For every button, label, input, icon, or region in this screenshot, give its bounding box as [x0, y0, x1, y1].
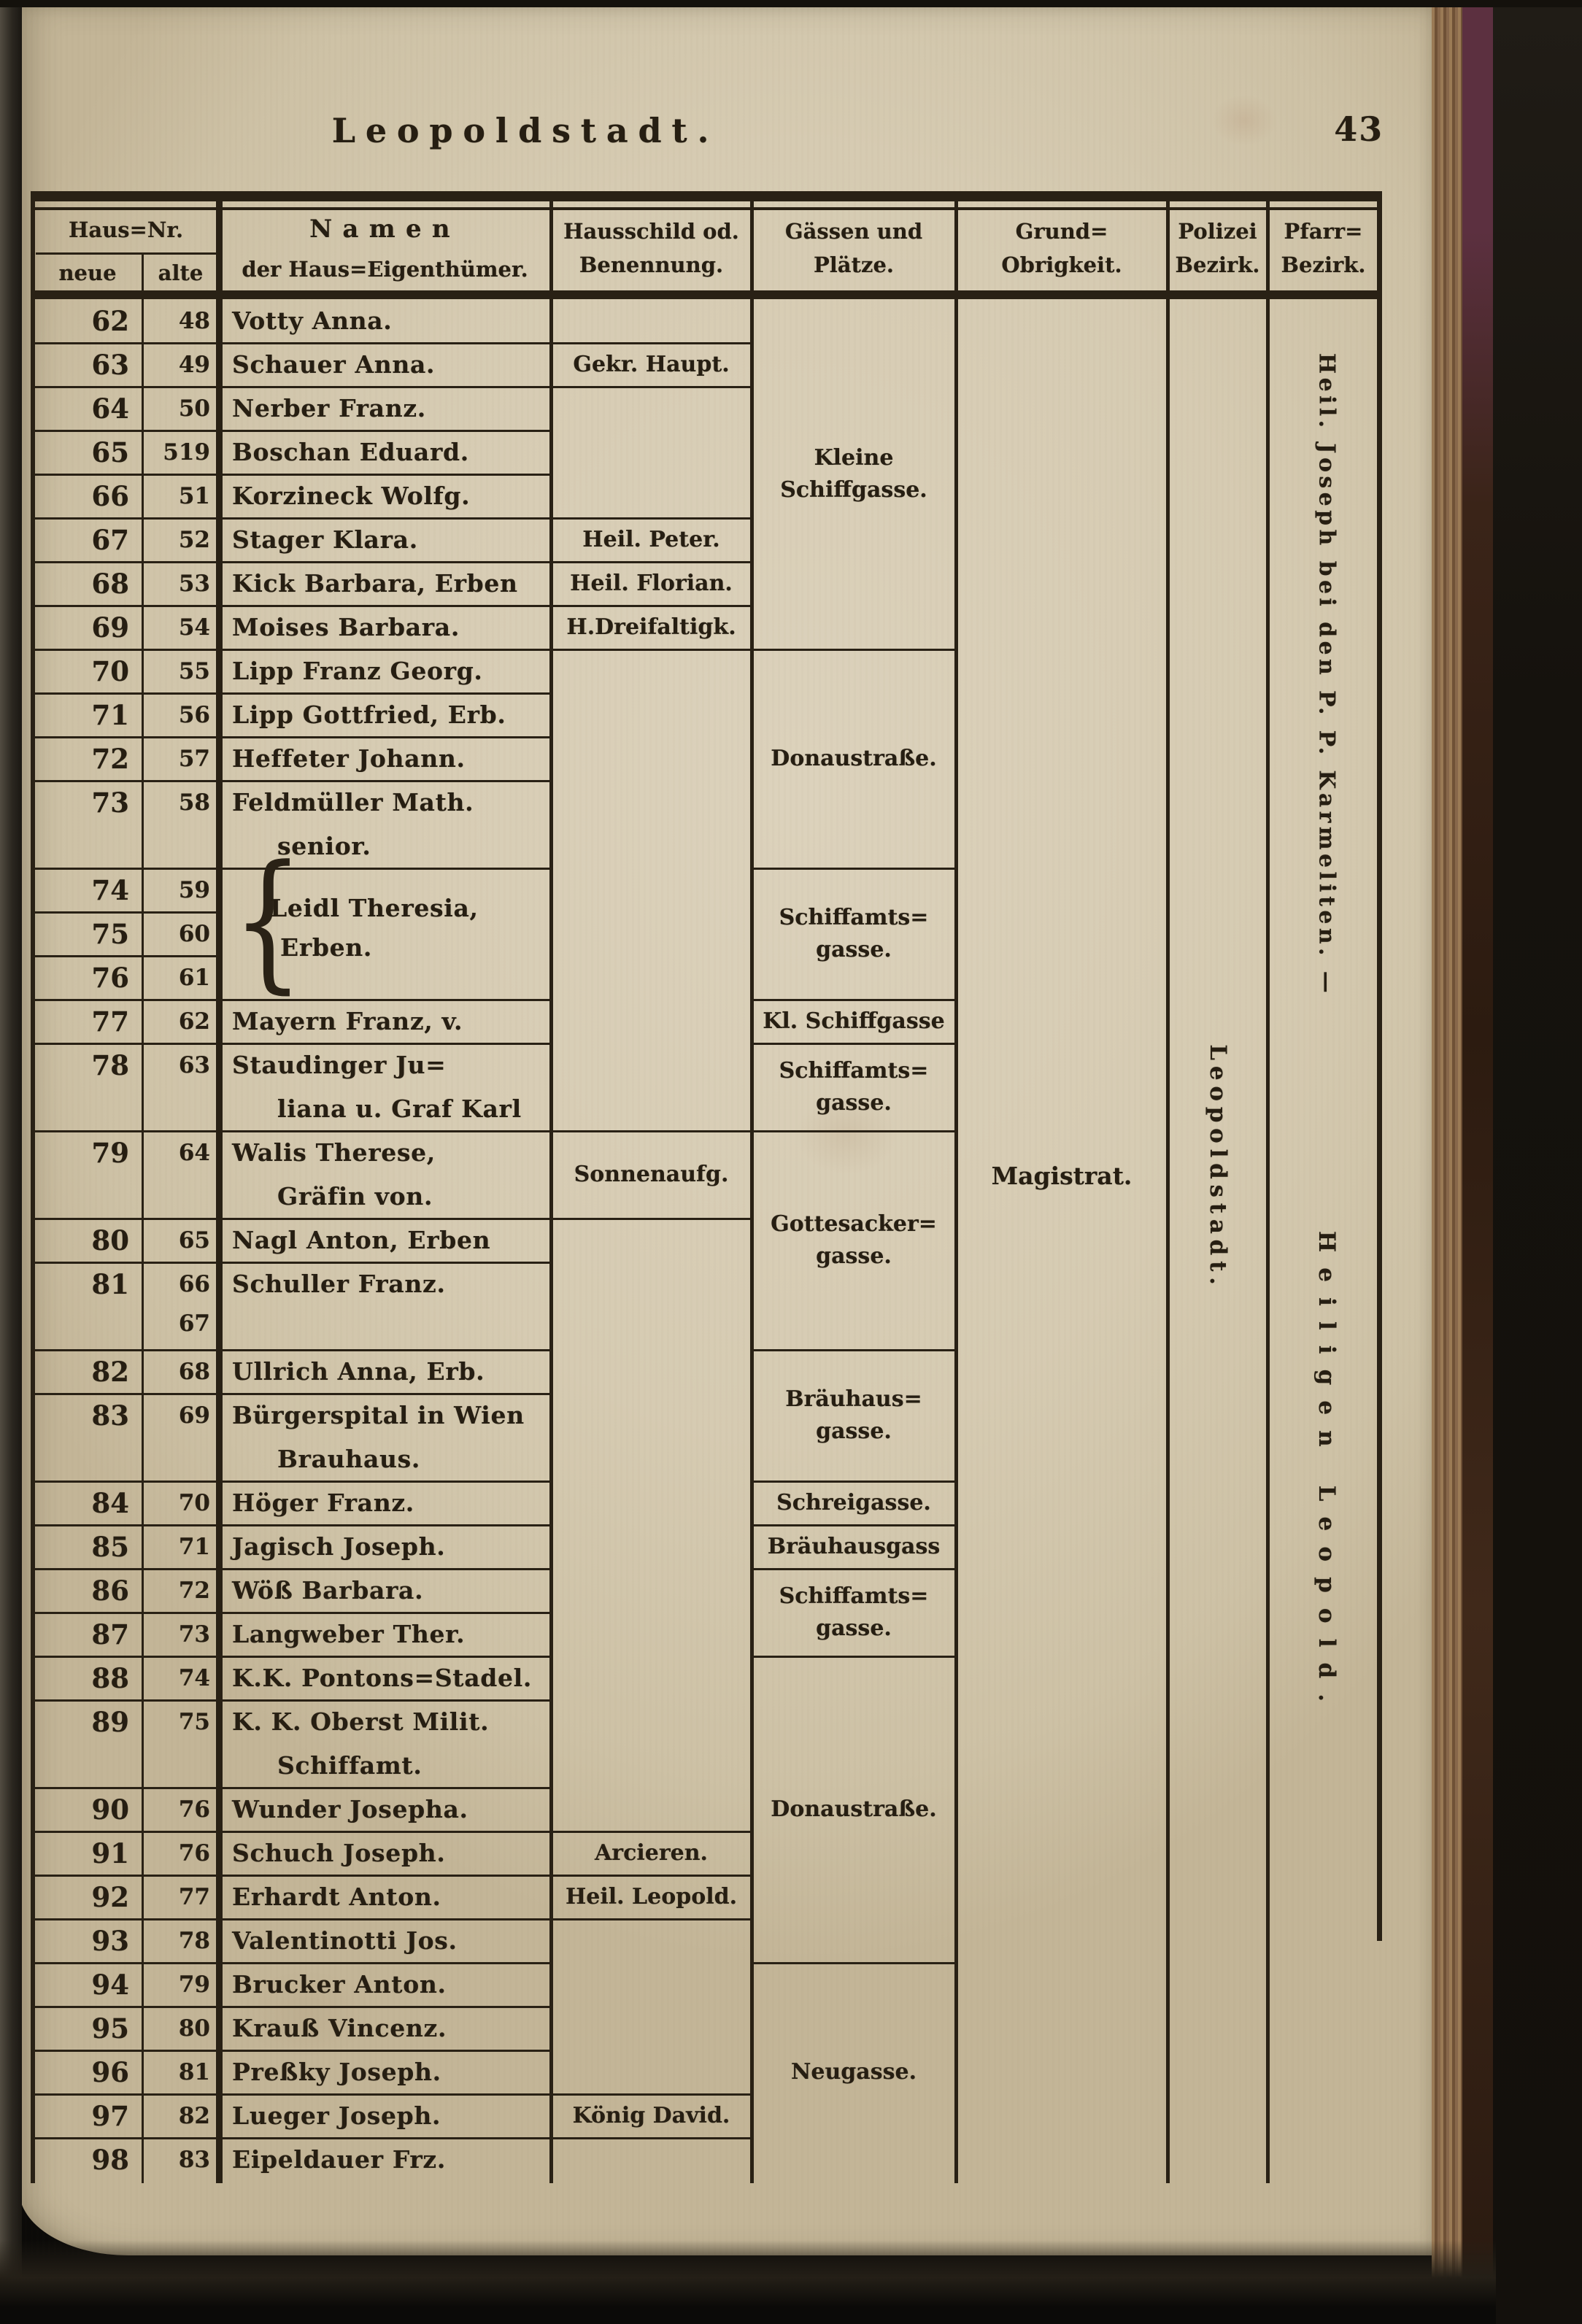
owner-name: Erhardt Anton.: [232, 1875, 441, 1919]
owner-name: Lipp Franz Georg.: [232, 649, 483, 693]
house-number-new: 68: [33, 562, 129, 606]
house-number-new: 85: [33, 1525, 129, 1569]
header-gaessen: Gässen und: [752, 219, 956, 244]
owner-name-braced: Erben.: [280, 928, 372, 968]
owner-name: Langweber Ther.: [232, 1613, 465, 1656]
house-number-old: 70: [142, 1481, 210, 1525]
row-divider: [35, 955, 216, 957]
owner-name: Kick Barbara, Erben: [232, 562, 518, 606]
owner-name: Jagisch Joseph.: [232, 1525, 445, 1569]
house-number-old: 52: [142, 518, 210, 562]
header-hausschild: Hausschild od.: [551, 219, 752, 244]
street-name: Donaustraße.: [752, 743, 956, 775]
house-number-old: 82: [142, 2094, 210, 2138]
page-stack-edge: [1432, 0, 1465, 2284]
owner-name: Lipp Gottfried, Erb.: [232, 693, 506, 737]
street-name: Schiffgasse.: [752, 474, 956, 506]
police-district-label: Leopoldstadt.: [1205, 1044, 1231, 1290]
header-haus-nr: Haus=Nr.: [33, 217, 219, 242]
house-number-new: 63: [33, 343, 129, 387]
row-divider: [35, 1481, 549, 1483]
house-number-old: 72: [142, 1569, 210, 1613]
house-number-old: 76: [142, 1788, 210, 1831]
owner-name: Brauhaus.: [277, 1437, 420, 1481]
row-divider: [35, 517, 549, 520]
street-name: Schiffamts=: [752, 1055, 956, 1087]
row-divider: [35, 1656, 549, 1658]
row-divider: [35, 1699, 549, 1702]
parish-district-label: Heiligen Leopold.: [1313, 1231, 1340, 1717]
owner-name: Schiffamt.: [277, 1744, 422, 1788]
page-title: Leopoldstadt.: [277, 111, 773, 150]
shield-box-rule: [553, 386, 750, 388]
house-number-new: 84: [33, 1481, 129, 1525]
row-divider: [35, 1130, 549, 1132]
street-divider: [754, 1043, 954, 1045]
owner-name: Krauß Vincenz.: [232, 2007, 447, 2050]
house-number-old: 63: [142, 1043, 210, 1087]
row-divider: [35, 692, 549, 695]
house-number-old: 65: [142, 1219, 210, 1262]
house-shield: Heil. Peter.: [551, 518, 752, 562]
house-shield: Heil. Florian.: [551, 562, 752, 606]
owner-name: Heffeter Johann.: [232, 737, 466, 781]
row-divider: [35, 2137, 549, 2139]
house-shield: König David.: [551, 2094, 752, 2138]
row-divider: [35, 2050, 549, 2052]
owner-name: Brucker Anton.: [232, 1963, 447, 2007]
house-number-new: 78: [33, 1043, 129, 1087]
shield-box-rule: [553, 649, 750, 651]
house-number-old: 69: [142, 1394, 210, 1437]
owner-name: Preßky Joseph.: [232, 2050, 441, 2094]
house-number-old: 64: [142, 1131, 210, 1175]
house-number-old: 68: [142, 1350, 210, 1394]
owner-name: Höger Franz.: [232, 1481, 414, 1525]
house-number-old: 519: [142, 431, 210, 474]
header-polizei: Polizei: [1168, 219, 1267, 244]
header-haus-nr-underline: [36, 252, 216, 255]
shield-box-rule: [553, 1875, 750, 1877]
house-number-new: 82: [33, 1350, 129, 1394]
header-pfarr-sub: Bezirk.: [1267, 252, 1379, 277]
shield-box-rule: [553, 1831, 750, 1833]
street-name: Neugasse.: [752, 2056, 956, 2088]
house-number-old: 77: [142, 1875, 210, 1919]
shield-box-rule: [553, 561, 750, 563]
house-number-old: 59: [142, 868, 210, 912]
owner-name: Gräfin von.: [277, 1175, 433, 1219]
house-number-old: 50: [142, 387, 210, 431]
bottom-edge: [0, 2240, 1496, 2324]
parish-district-label: Heil. Joseph bei den P. P. Karmeliten. —: [1313, 353, 1339, 997]
header-bottom-rule: [31, 290, 1382, 299]
house-number-new: 91: [33, 1831, 129, 1875]
house-number-new: 65: [33, 431, 129, 474]
owner-name: Stager Klara.: [232, 518, 418, 562]
street-name: Schiffamts=: [752, 1580, 956, 1613]
street-divider: [754, 1481, 954, 1483]
header-pfarr: Pfarr=: [1267, 219, 1379, 244]
house-number-old: 75: [142, 1700, 210, 1744]
house-number-old: 83: [142, 2138, 210, 2182]
house-number-old: 60: [142, 912, 210, 956]
row-divider: [35, 1043, 549, 1045]
shield-box-rule: [553, 342, 750, 344]
scanned-book-page: Leopoldstadt. 43 Haus=Nr.neuealteNamende…: [0, 0, 1582, 2324]
house-number-old: 81: [142, 2050, 210, 2094]
house-number-old: 49: [142, 343, 210, 387]
shield-box-rule: [553, 2093, 750, 2096]
house-number-new: 96: [33, 2050, 129, 2094]
page-number: 43: [1322, 109, 1384, 149]
row-divider: [35, 1962, 549, 1964]
house-number-new: 87: [33, 1613, 129, 1656]
row-divider: [35, 649, 549, 651]
column-rule: [216, 191, 223, 2183]
house-number-new: 79: [33, 1131, 129, 1175]
street-name: Schreigasse.: [752, 1487, 956, 1519]
house-number-new: 77: [33, 1000, 129, 1043]
owner-name: Lueger Joseph.: [232, 2094, 441, 2138]
page-edge-shadow: [1462, 0, 1493, 2298]
house-number-old: 80: [142, 2007, 210, 2050]
street-name: Kleine: [752, 442, 956, 474]
shield-box-rule: [553, 605, 750, 607]
house-shield: Sonnenaufg.: [551, 1131, 752, 1219]
row-divider: [35, 561, 549, 563]
house-number-new: 67: [33, 518, 129, 562]
shield-box-rule: [553, 517, 750, 520]
owner-name: Wöß Barbara.: [232, 1569, 423, 1613]
house-shield: Gekr. Haupt.: [551, 343, 752, 387]
row-divider: [35, 736, 549, 738]
house-number-new: 75: [33, 912, 129, 956]
owner-name: Feldmüller Math.: [232, 781, 474, 825]
street-name: Kl. Schiffgasse: [752, 1005, 956, 1038]
street-name: Schiffamts=: [752, 902, 956, 934]
header-neue: neue: [33, 260, 142, 285]
house-number-new: 92: [33, 1875, 129, 1919]
owner-name: Schuch Joseph.: [232, 1831, 445, 1875]
house-number-old: 79: [142, 1963, 210, 2007]
owner-name: Schauer Anna.: [232, 343, 435, 387]
shield-box-rule: [553, 1130, 750, 1132]
house-number-old: 78: [142, 1919, 210, 1963]
owner-name: Wunder Josepha.: [232, 1788, 468, 1831]
owner-name: Votty Anna.: [232, 299, 392, 343]
shield-box-rule: [553, 1918, 750, 1920]
owner-name: Valentinotti Jos.: [232, 1919, 458, 1963]
shield-box-rule: [553, 2137, 750, 2139]
house-shield: H.Dreifaltigk.: [551, 606, 752, 649]
house-number-old: 51: [142, 474, 210, 518]
house-number-new: 71: [33, 693, 129, 737]
book-cover-cloth: [1490, 0, 1582, 2324]
house-number-old: 73: [142, 1613, 210, 1656]
row-divider: [35, 1568, 549, 1570]
authority-label: Magistrat.: [956, 1162, 1168, 1190]
street-name: Bräuhaus=: [752, 1383, 956, 1416]
owner-name: Schuller Franz.: [232, 1262, 446, 1306]
row-divider: [35, 386, 549, 388]
owner-name: liana u. Graf Karl: [277, 1087, 522, 1131]
house-number-new: 70: [33, 649, 129, 693]
owner-name: K. K. Oberst Milit.: [232, 1700, 489, 1744]
house-number-new: 74: [33, 868, 129, 912]
street-name: gasse.: [752, 934, 956, 966]
house-number-new: 81: [33, 1262, 129, 1306]
street-name: gasse.: [752, 1416, 956, 1448]
column-rule: [1266, 191, 1270, 2183]
owner-name: Walis Therese,: [232, 1131, 436, 1175]
house-number-new: 86: [33, 1569, 129, 1613]
paper-stain: [1211, 95, 1277, 146]
row-divider: [35, 780, 549, 782]
street-name: gasse.: [752, 1613, 956, 1645]
house-shield: Arcieren.: [551, 1831, 752, 1875]
street-divider: [754, 1962, 954, 1964]
owner-name: Nagl Anton, Erben: [232, 1219, 490, 1262]
header-grund: Grund=: [956, 219, 1168, 244]
shield-box-rule: [553, 1218, 750, 1220]
row-divider: [35, 1831, 549, 1833]
street-divider: [754, 1568, 954, 1570]
owner-name: Staudinger Ju=: [232, 1043, 447, 1087]
street-name: gasse.: [752, 1240, 956, 1273]
row-divider: [35, 474, 549, 476]
row-divider: [35, 1524, 549, 1526]
house-number-old: 58: [142, 781, 210, 825]
house-number-new: 62: [33, 299, 129, 343]
house-number-new: 76: [33, 956, 129, 1000]
table-top-thin-rule: [31, 207, 1382, 210]
house-number-old: 54: [142, 606, 210, 649]
house-number-old: 61: [142, 956, 210, 1000]
house-number-old: 67: [142, 1302, 210, 1346]
owner-name: Ullrich Anna, Erb.: [232, 1350, 485, 1394]
row-divider: [35, 1875, 549, 1877]
header-grund-sub: Obrigkeit.: [956, 252, 1168, 277]
house-shield: Heil. Leopold.: [551, 1875, 752, 1919]
house-number-new: 93: [33, 1919, 129, 1963]
header-hausschild-sub: Benennung.: [551, 252, 752, 277]
row-divider: [35, 2006, 549, 2008]
house-number-old: 57: [142, 737, 210, 781]
house-number-new: 98: [33, 2138, 129, 2182]
owner-name-braced: Leidl Theresia,: [270, 889, 479, 928]
street-name: gasse.: [752, 1087, 956, 1119]
house-number-new: 73: [33, 781, 129, 825]
owner-name: K.K. Pontons=Stadel.: [232, 1656, 532, 1700]
street-divider: [754, 999, 954, 1001]
street-name: Donaustraße.: [752, 1794, 956, 1826]
house-number-old: 55: [142, 649, 210, 693]
header-alte: alte: [142, 260, 219, 285]
house-number-new: 97: [33, 2094, 129, 2138]
street-divider: [754, 1656, 954, 1658]
table-top-heavy-rule: [31, 191, 1382, 201]
owner-name: Boschan Eduard.: [232, 431, 469, 474]
street-divider: [754, 1524, 954, 1526]
house-number-old: 74: [142, 1656, 210, 1700]
house-number-old: 56: [142, 693, 210, 737]
house-number-old: 62: [142, 1000, 210, 1043]
house-number-new: 95: [33, 2007, 129, 2050]
house-number-new: 90: [33, 1788, 129, 1831]
house-number-old: 53: [142, 562, 210, 606]
house-number-old: 76: [142, 1831, 210, 1875]
column-rule: [1377, 191, 1382, 1941]
house-number-old: 71: [142, 1525, 210, 1569]
street-divider: [754, 868, 954, 870]
row-divider: [35, 911, 216, 914]
street-name: Gottesacker=: [752, 1208, 956, 1240]
row-divider: [35, 1262, 549, 1264]
street-divider: [754, 649, 954, 651]
street-divider: [754, 1349, 954, 1351]
house-number-new: 88: [33, 1656, 129, 1700]
owner-name: Nerber Franz.: [232, 387, 426, 431]
street-name: Bräuhausgass: [752, 1531, 956, 1563]
row-divider: [35, 1393, 549, 1395]
row-divider: [35, 1218, 549, 1220]
house-number-new: 64: [33, 387, 129, 431]
owner-name: Moises Barbara.: [232, 606, 460, 649]
owner-name: Korzineck Wolfg.: [232, 474, 470, 518]
house-number-new: 83: [33, 1394, 129, 1437]
row-divider: [35, 1918, 549, 1920]
house-number-new: 89: [33, 1700, 129, 1744]
header-gaessen-sub: Plätze.: [752, 252, 956, 277]
row-divider: [35, 1612, 549, 1614]
house-number-old: 48: [142, 299, 210, 343]
row-divider: [35, 1787, 549, 1789]
house-number-old: 66: [142, 1262, 210, 1306]
house-number-new: 94: [33, 1963, 129, 2007]
house-number-new: 66: [33, 474, 129, 518]
street-divider: [754, 1130, 954, 1132]
house-number-new: 69: [33, 606, 129, 649]
header-namen-sub: der Haus=Eigenthümer.: [219, 257, 551, 282]
header-polizei-sub: Bezirk.: [1168, 252, 1267, 277]
top-edge: [0, 0, 1582, 7]
owner-name: Eipeldauer Frz.: [232, 2138, 446, 2182]
row-divider: [35, 342, 549, 344]
left-binding-edge: [0, 0, 22, 2324]
owner-name: Bürgerspital in Wien: [232, 1394, 525, 1437]
house-number-new: 72: [33, 737, 129, 781]
row-divider: [35, 2093, 549, 2096]
house-number-new: 80: [33, 1219, 129, 1262]
row-divider: [35, 1349, 549, 1351]
row-divider: [35, 605, 549, 607]
row-divider: [35, 430, 549, 432]
header-namen: Namen: [219, 215, 551, 244]
